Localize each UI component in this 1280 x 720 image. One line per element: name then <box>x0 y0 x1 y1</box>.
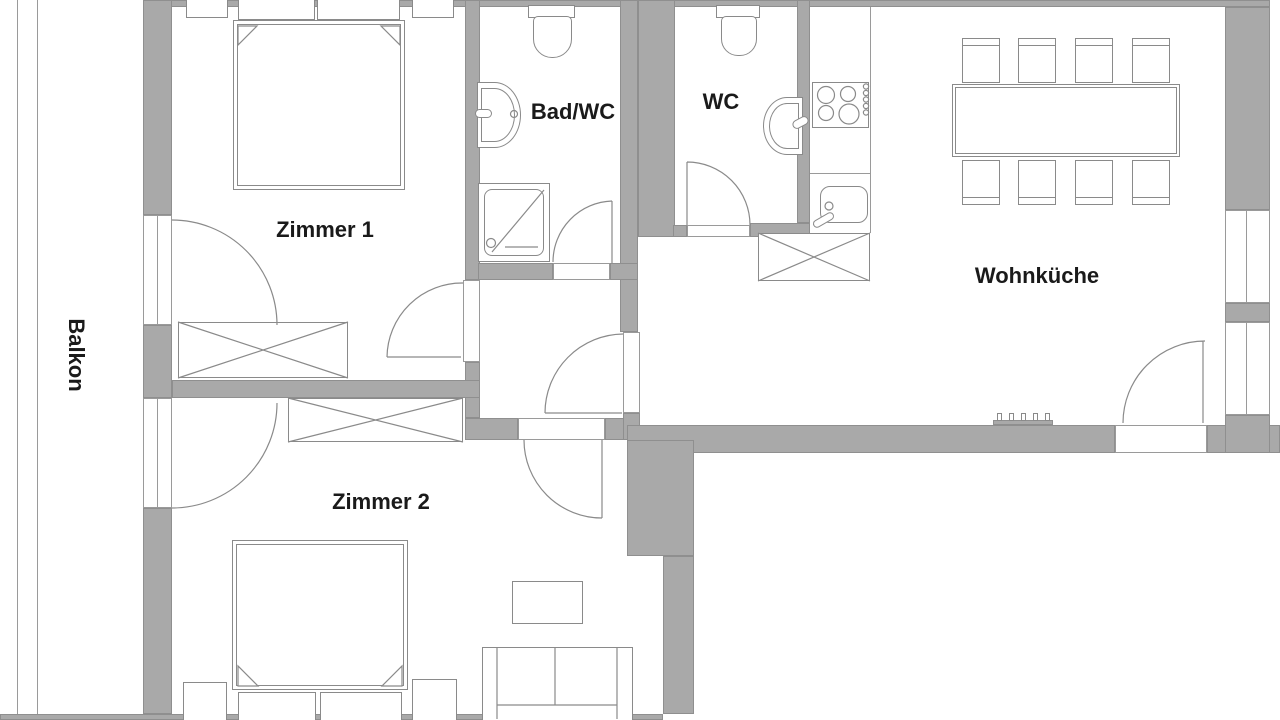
door-swing-icon <box>687 162 750 225</box>
door-swing-icon <box>387 283 463 357</box>
wall-right-lower <box>1225 415 1270 453</box>
nightstand-icon <box>412 679 457 720</box>
wall-bath-bottom-left <box>478 263 553 280</box>
wall-left-mid <box>143 325 172 398</box>
wardrobe-icon <box>758 233 870 281</box>
wall-hall-right-column <box>620 0 638 332</box>
toilet-icon <box>721 16 757 56</box>
chair-icon <box>1075 160 1113 198</box>
chair-icon <box>1132 160 1170 198</box>
double-bed-icon <box>238 0 315 20</box>
door-opening-wohnkueche <box>623 332 640 413</box>
door-opening-zimmer2 <box>518 418 605 440</box>
chair-icon <box>1018 160 1056 198</box>
nightstand-icon <box>412 0 454 18</box>
wall-zimmer2-right-lower <box>663 556 694 714</box>
room-label-zimmer2: Zimmer 2 <box>332 489 430 515</box>
chair-icon <box>1132 197 1170 205</box>
wall-right-upper <box>1225 7 1270 210</box>
floorplan: Balkon Zimmer 1 Bad/WC WC Wohnküche Zimm… <box>0 0 1280 720</box>
shower-icon <box>484 189 544 256</box>
double-bed-icon <box>317 0 400 20</box>
room-label-wc: WC <box>703 89 740 115</box>
door-opening-wc <box>687 225 750 237</box>
toilet-icon <box>533 16 572 58</box>
radiator-icon <box>1009 413 1014 421</box>
wall-left-lower <box>143 508 172 714</box>
balcony-railing-icon <box>17 0 18 714</box>
room-label-zimmer1: Zimmer 1 <box>276 217 374 243</box>
window-icon <box>1246 323 1247 414</box>
wall-bath-bottom-right <box>610 263 638 280</box>
balcony-railing-icon <box>37 0 38 714</box>
double-bed-icon <box>236 544 404 686</box>
door-swing-icon <box>172 403 277 508</box>
wall-left-upper <box>143 0 172 215</box>
room-label-bad-wc: Bad/WC <box>531 99 615 125</box>
balcony-door-zimmer2 <box>143 398 172 508</box>
balcony-door-zimmer1 <box>143 215 172 325</box>
chair-icon <box>962 160 1000 198</box>
kitchen-counter-divider <box>810 173 870 174</box>
wall-hall-zimmer2-left <box>465 418 518 440</box>
door-swing-icon <box>545 334 623 413</box>
window-right-1 <box>1225 210 1270 303</box>
door-swing-icon <box>553 201 612 263</box>
wardrobe-icon <box>288 398 463 442</box>
nightstand-icon <box>186 0 228 18</box>
wall-zimmer1-zimmer2 <box>172 380 480 398</box>
door-opening-bad <box>553 263 610 280</box>
wall-zimmer2-right-upper <box>627 440 694 556</box>
chair-icon <box>962 45 1000 83</box>
door-swing-icon <box>524 440 602 518</box>
faucet-icon <box>475 109 492 118</box>
wall-bath-wc-block <box>638 0 675 237</box>
wall-wc-bottom-left <box>673 225 687 237</box>
radiator-icon <box>1021 413 1026 421</box>
room-label-wohnkueche: Wohnküche <box>975 263 1099 289</box>
dining-table-icon <box>955 87 1177 154</box>
door-swing-icon <box>172 220 277 325</box>
chair-icon <box>1018 197 1056 205</box>
radiator-icon <box>1033 413 1038 421</box>
door-opening-zimmer1 <box>463 280 480 362</box>
double-bed-icon <box>237 24 401 186</box>
kitchen-counter-edge <box>870 7 871 233</box>
chair-icon <box>1075 197 1113 205</box>
nightstand-icon <box>183 682 227 720</box>
double-bed-icon <box>320 692 402 720</box>
stove-icon <box>812 82 869 128</box>
window-icon <box>157 216 158 324</box>
window-icon <box>157 399 158 507</box>
radiator-icon <box>1045 413 1050 421</box>
wardrobe-icon <box>178 322 348 378</box>
wall-right-mid <box>1225 303 1270 322</box>
chair-icon <box>1132 45 1170 83</box>
chair-icon <box>1075 45 1113 83</box>
window-icon <box>1246 211 1247 302</box>
door-opening-entrance <box>1115 425 1207 453</box>
door-swing-icon <box>1123 341 1205 423</box>
side-table-icon <box>512 581 583 624</box>
sofa-icon <box>482 647 633 720</box>
radiator-icon <box>997 413 1002 421</box>
wall-bottom-left <box>627 425 1115 453</box>
double-bed-icon <box>238 692 316 720</box>
room-label-balkon: Balkon <box>63 318 89 391</box>
chair-icon <box>1018 45 1056 83</box>
chair-icon <box>962 197 1000 205</box>
window-right-2 <box>1225 322 1270 415</box>
